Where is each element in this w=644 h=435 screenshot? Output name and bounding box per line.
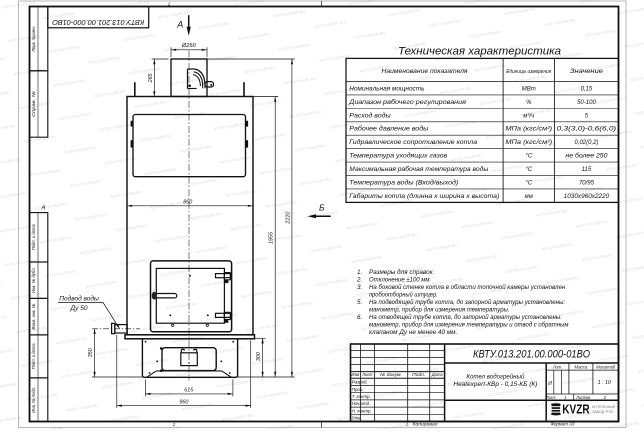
svg-text:1955: 1955 bbox=[269, 231, 275, 244]
svg-text:Лист: Лист bbox=[546, 395, 556, 400]
svg-text:Ø250: Ø250 bbox=[181, 43, 197, 49]
svg-text:Формат А3: Формат А3 bbox=[551, 421, 575, 426]
svg-text:Расход воды: Расход воды bbox=[349, 112, 391, 119]
svg-text:Нач.отд.: Нач.отд. bbox=[352, 401, 371, 406]
svg-text:0,3(3,0)-0,6(6,0): 0,3(3,0)-0,6(6,0) bbox=[557, 127, 617, 133]
svg-text:Подп. и дата: Подп. и дата bbox=[31, 343, 36, 369]
svg-text:1030х960х2220: 1030х960х2220 bbox=[564, 194, 610, 200]
svg-text:И: И bbox=[548, 381, 552, 387]
svg-text:Ду 50: Ду 50 bbox=[69, 306, 88, 312]
svg-text:Перв. примен.: Перв. примен. bbox=[31, 26, 36, 52]
svg-text:КВТУ.013.201.00.000-01ВО: КВТУ.013.201.00.000-01ВО bbox=[52, 18, 144, 27]
svg-text:клапаном Ду не менее 40 мм.: клапаном Ду не менее 40 мм. bbox=[369, 329, 457, 336]
svg-text:Справ. №: Справ. № bbox=[31, 91, 36, 117]
svg-text:не более 250: не более 250 bbox=[565, 154, 608, 160]
svg-text:%: % bbox=[526, 100, 532, 106]
svg-text:Температура воды (Вход/выход): Температура воды (Вход/выход) bbox=[349, 179, 458, 186]
svg-text:манометр, прибор для измерения: манометр, прибор для измерения температу… bbox=[369, 320, 569, 328]
svg-text:Изм: Изм bbox=[351, 372, 359, 377]
svg-text:Heatexpert-КВр - 0,15-КБ (К): Heatexpert-КВр - 0,15-КБ (К) bbox=[453, 381, 537, 388]
svg-text:6.: 6. bbox=[357, 314, 362, 321]
svg-text:265: 265 bbox=[148, 72, 154, 83]
svg-text:Подп.: Подп. bbox=[412, 372, 425, 377]
svg-text:2220: 2220 bbox=[285, 212, 291, 225]
svg-text:Масштаб: Масштаб bbox=[596, 365, 616, 370]
svg-text:Отклонение ±100 мм.: Отклонение ±100 мм. bbox=[369, 276, 431, 283]
svg-text:МПа (кгс/см²): МПа (кгс/см²) bbox=[505, 127, 552, 133]
svg-text:пробоотборный штуцер.: пробоотборный штуцер. bbox=[369, 290, 438, 298]
svg-text:манометр, прибор для измерения: манометр, прибор для измерения температу… bbox=[369, 305, 510, 313]
svg-text:Подп. и дата: Подп. и дата bbox=[31, 224, 36, 250]
svg-text:На отводящей трубе котла, до з: На отводящей трубе котла, до запорной ар… bbox=[369, 313, 562, 321]
svg-text:Температура уходящих газов: Температура уходящих газов bbox=[349, 153, 448, 160]
svg-text:860: 860 bbox=[183, 200, 192, 206]
svg-text:Копировал: Копировал bbox=[413, 421, 439, 426]
svg-text:Лит.: Лит. bbox=[552, 365, 562, 370]
svg-text:Техническая характеристика: Техническая характеристика bbox=[398, 46, 561, 58]
svg-text:Максимальная рабочая температу: Максимальная рабочая температура воды bbox=[349, 166, 489, 173]
svg-text:350: 350 bbox=[88, 348, 94, 357]
svg-text:КОТЕЛЬНЫЙ: КОТЕЛЬНЫЙ bbox=[592, 405, 615, 409]
svg-text:На подводящей трубе котла, до: На подводящей трубе котла, до запорной а… bbox=[369, 298, 565, 306]
svg-text:°С: °С bbox=[525, 154, 532, 160]
svg-text:615: 615 bbox=[184, 388, 194, 394]
svg-text:Наименование показателя: Наименование показателя bbox=[382, 68, 469, 75]
svg-text:Размеры для справок.: Размеры для справок. bbox=[369, 268, 434, 276]
svg-text:мм: мм bbox=[525, 194, 533, 200]
svg-text:м³/ч: м³/ч bbox=[523, 113, 534, 119]
svg-text:Значение: Значение bbox=[570, 69, 604, 75]
svg-text:Гидравлическое сопротивление к: Гидравлическое сопротивление котла bbox=[349, 139, 477, 146]
svg-text:300: 300 bbox=[256, 352, 262, 361]
svg-text:Номинальная мощность: Номинальная мощность bbox=[349, 85, 424, 92]
svg-text:1.: 1. bbox=[357, 269, 362, 276]
svg-text:Т. контр.: Т. контр. bbox=[352, 394, 371, 399]
svg-text:Габариты котла (длинна х ширин: Габариты котла (длинна х ширина х высота… bbox=[349, 193, 499, 200]
svg-text:Н. контр.: Н. контр. bbox=[352, 408, 372, 413]
svg-text:КВТУ.013.201.00.000-01ВО: КВТУ.013.201.00.000-01ВО bbox=[473, 349, 590, 361]
svg-text:А: А bbox=[176, 19, 183, 29]
svg-text:Подвод воды: Подвод воды bbox=[59, 296, 99, 302]
svg-text:960: 960 bbox=[179, 399, 188, 405]
svg-text:3.: 3. bbox=[357, 284, 362, 291]
svg-text:1 : 10: 1 : 10 bbox=[598, 380, 611, 386]
svg-text:5.: 5. bbox=[357, 299, 362, 306]
svg-text:Разраб.: Разраб. bbox=[352, 380, 368, 385]
svg-text:МВт: МВт bbox=[522, 86, 536, 92]
svg-text:Б: Б bbox=[319, 203, 325, 213]
svg-text:№ докум.: № докум. bbox=[380, 372, 402, 377]
svg-text:Инв. № подл.: Инв. № подл. bbox=[31, 387, 36, 413]
svg-text:Единицы измерения: Единицы измерения bbox=[506, 69, 551, 75]
svg-text:0,02(0,2): 0,02(0,2) bbox=[574, 140, 598, 146]
svg-text:Утв.: Утв. bbox=[352, 416, 362, 421]
svg-text:°С: °С bbox=[525, 167, 532, 173]
svg-text:0,15: 0,15 bbox=[581, 86, 593, 92]
svg-text:115: 115 bbox=[582, 167, 592, 173]
svg-text:Инв. № дубл.: Инв. № дубл. bbox=[31, 267, 36, 293]
svg-text:Пров.: Пров. bbox=[352, 387, 364, 392]
svg-text:°С: °С bbox=[525, 180, 532, 186]
svg-text:Котел водогрейный: Котел водогрейный bbox=[466, 372, 524, 380]
svg-text:МПа (кгс/см²): МПа (кгс/см²) bbox=[505, 140, 552, 146]
svg-text:70/95: 70/95 bbox=[579, 180, 595, 186]
svg-text:На боковой стенке котла в обла: На боковой стенке котла в области топочн… bbox=[369, 283, 566, 291]
svg-text:ЗАВОД. РЭП: ЗАВОД. РЭП bbox=[592, 410, 613, 414]
svg-text:Масса: Масса bbox=[574, 365, 588, 370]
svg-text:Лист: Лист bbox=[362, 372, 373, 377]
svg-text:KVZR: KVZR bbox=[562, 401, 590, 416]
svg-text:Листов: Листов bbox=[575, 395, 591, 400]
svg-text:Взам. инв. №: Взам. инв. № bbox=[31, 304, 36, 330]
svg-text:Рабочее давление воды: Рабочее давление воды bbox=[349, 126, 428, 133]
svg-text:А: А bbox=[40, 205, 45, 211]
svg-text:2.: 2. bbox=[356, 276, 362, 283]
svg-text:Диапазон рабочего регулировани: Диапазон рабочего регулирования bbox=[348, 99, 467, 106]
svg-text:Дата: Дата bbox=[431, 372, 443, 377]
svg-text:50-100: 50-100 bbox=[577, 100, 596, 106]
